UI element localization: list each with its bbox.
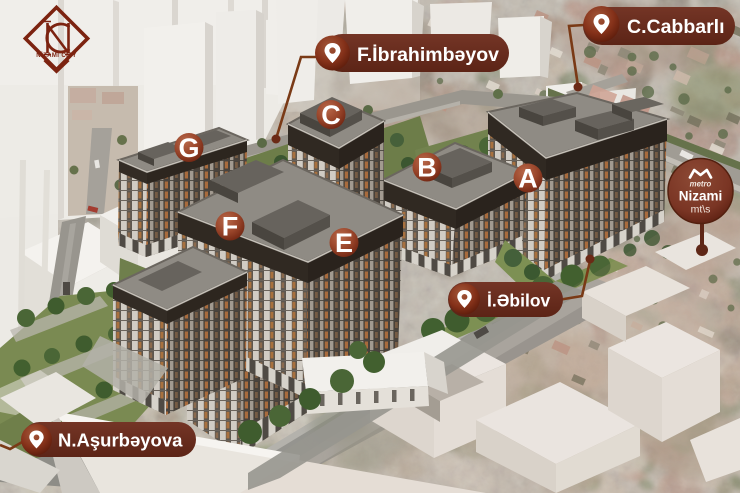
svg-text:mt\s: mt\s [691,204,711,216]
svg-text:C: C [321,100,341,130]
svg-text:Nizami: Nizami [679,189,723,204]
svg-text:F: F [222,212,239,242]
svg-text:F.İbrahimbəyov: F.İbrahimbəyov [357,43,499,66]
svg-text:A: A [518,164,538,194]
svg-text:İ.Əbilov: İ.Əbilov [487,291,551,311]
svg-text:E: E [335,228,353,258]
svg-text:C.Cabbarlı: C.Cabbarlı [627,16,725,38]
svg-text:metro: metro [690,180,712,189]
svg-text:G: G [178,133,199,163]
svg-text:B: B [417,153,437,183]
svg-text:NİZAMİ CİTY: NİZAMİ CİTY [36,52,76,59]
svg-text:N.Aşurbəyova: N.Aşurbəyova [58,430,183,451]
